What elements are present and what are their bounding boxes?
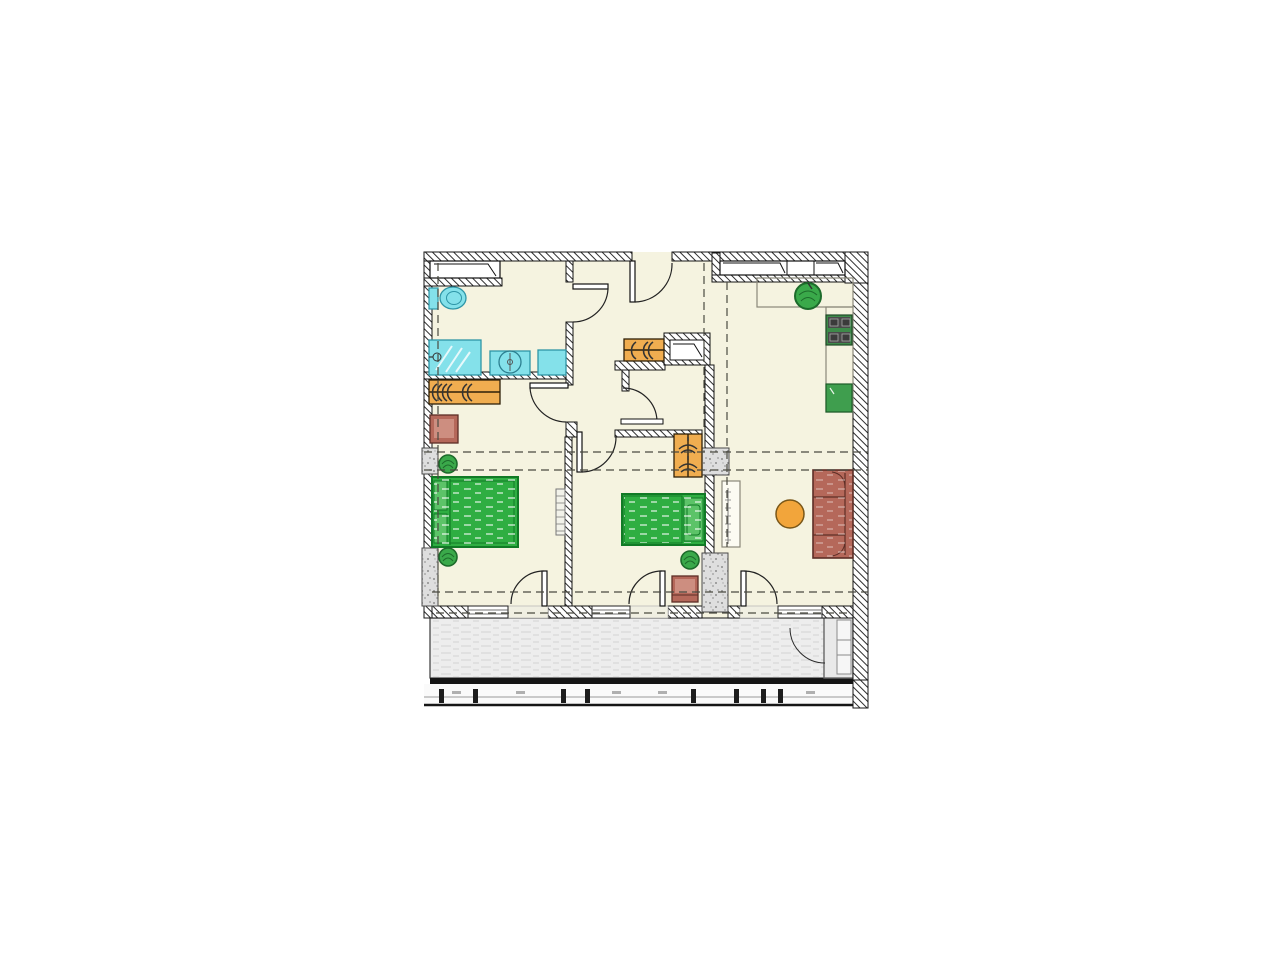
railing-post	[439, 689, 444, 703]
bedroom2-balcony-door-leaf	[660, 571, 665, 606]
wall-right-bottom-corner	[853, 680, 868, 708]
railing-post	[561, 689, 566, 703]
apartment-floor-plan	[0, 0, 1280, 960]
balcony-door-gap	[630, 606, 668, 618]
balcony-apron	[424, 684, 868, 704]
wall-mid-upper	[705, 365, 714, 448]
bathroom-door-leaf	[573, 284, 608, 289]
closet-door-leaf	[621, 419, 663, 424]
double-bed-texture	[434, 479, 516, 545]
wall-bathroom-east-lower	[566, 322, 573, 385]
railing-tick	[658, 691, 667, 694]
single-bed-texture	[624, 496, 703, 543]
wall-spur-bottom	[615, 361, 665, 370]
wall-bottom-5	[822, 606, 853, 618]
living-balcony-door-leaf	[741, 571, 746, 606]
balcony-window	[778, 606, 822, 618]
wall-hall-block	[566, 422, 577, 437]
stove-burner	[830, 319, 838, 326]
balcony-window	[468, 606, 508, 618]
concrete-column	[702, 553, 728, 612]
railing-tick	[806, 691, 815, 694]
dressing-chair-seat	[434, 419, 454, 438]
wall-bottom-4	[728, 606, 740, 618]
stove-burner	[842, 334, 850, 341]
coffee-table	[776, 500, 804, 528]
stove-burner	[842, 319, 850, 326]
concrete-column	[422, 548, 438, 606]
railing-post	[473, 689, 478, 703]
plant	[439, 548, 457, 566]
railing-post	[691, 689, 696, 703]
toilet-bowl	[440, 287, 466, 309]
toilet-tank	[429, 288, 438, 309]
living-shelf	[722, 481, 740, 547]
screenshot-canvas	[0, 0, 1280, 960]
railing-post	[761, 689, 766, 703]
wall-bathroom-east-upper	[566, 261, 573, 282]
plant	[795, 283, 821, 309]
balcony-window	[592, 606, 630, 618]
stove-burner	[830, 334, 838, 341]
wall-bottom-3	[668, 606, 702, 618]
interior-window	[670, 340, 704, 360]
wall-bottom-1	[432, 606, 468, 618]
stove-stripe	[828, 328, 850, 332]
balcony-storage-shelves	[837, 620, 851, 674]
balcony-door-gap	[508, 606, 548, 618]
bedroom1-balcony-door-leaf	[542, 571, 547, 606]
wall-bay-cap	[424, 261, 430, 278]
railing-post	[734, 689, 739, 703]
sofa-texture	[814, 471, 852, 557]
railing-post	[778, 689, 783, 703]
nightstand-top	[675, 579, 695, 593]
railing-tick	[452, 691, 461, 694]
railing-tick	[612, 691, 621, 694]
wall-top-left	[424, 252, 632, 261]
wall-bedroom-divider	[565, 437, 572, 610]
entrance-door-leaf	[630, 261, 635, 302]
wall-bottom-2	[548, 606, 592, 618]
balcony-railing-band	[430, 678, 853, 684]
railing-tick	[516, 691, 525, 694]
balcony-door-gap	[740, 606, 778, 618]
wall-right	[853, 283, 868, 680]
bathroom-sink	[538, 350, 566, 375]
wall-mid-lower	[705, 475, 714, 553]
dressing-door-leaf	[530, 383, 568, 388]
wall-bay-sill	[424, 278, 502, 286]
plant	[681, 551, 699, 569]
balcony-deck-texture	[431, 619, 852, 677]
railing-post	[585, 689, 590, 703]
